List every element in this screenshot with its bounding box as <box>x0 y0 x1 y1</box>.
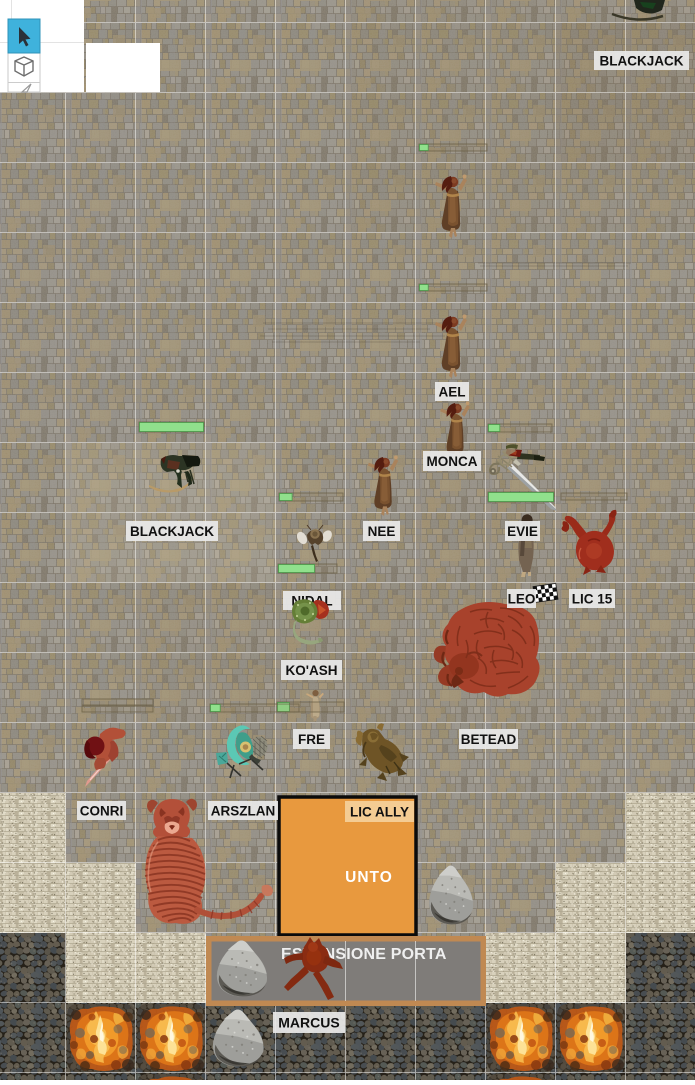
svg-text:UNTO: UNTO <box>345 869 393 886</box>
svg-text:KO'ASH: KO'ASH <box>286 663 338 678</box>
svg-text:LIC 15: LIC 15 <box>572 591 613 606</box>
svg-text:MARCUS: MARCUS <box>278 1015 339 1031</box>
svg-text:BETEAD: BETEAD <box>461 732 517 747</box>
svg-text:AEL: AEL <box>439 384 466 399</box>
svg-text:BLACKJACK: BLACKJACK <box>130 524 214 539</box>
svg-text:FRE: FRE <box>298 732 325 747</box>
svg-text:BLACKJACK: BLACKJACK <box>600 53 684 68</box>
svg-text:NEE: NEE <box>368 524 396 539</box>
svg-text:LIC ALLY: LIC ALLY <box>350 804 409 819</box>
svg-text:EVIE: EVIE <box>507 524 538 539</box>
svg-text:MONCA: MONCA <box>427 454 478 469</box>
svg-text:LEO: LEO <box>508 591 536 606</box>
svg-text:CONRI: CONRI <box>80 803 124 818</box>
svg-text:ARSZLAN: ARSZLAN <box>211 803 276 818</box>
